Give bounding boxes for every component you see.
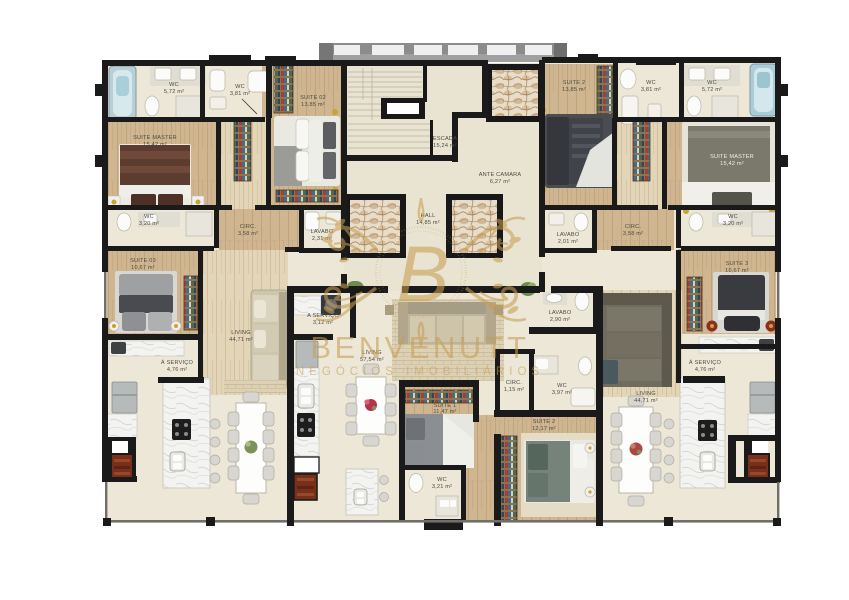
svg-text:3,81 m²: 3,81 m² — [641, 87, 661, 93]
svg-text:3,58 m²: 3,58 m² — [238, 231, 258, 237]
svg-text:WC: WC — [728, 214, 738, 220]
svg-text:15,42 m²: 15,42 m² — [143, 142, 167, 148]
svg-text:3,81 m²: 3,81 m² — [230, 91, 250, 97]
svg-text:WC: WC — [169, 82, 179, 88]
svg-text:Á SERVIÇO: Á SERVIÇO — [161, 359, 194, 366]
svg-text:CIRC.: CIRC. — [506, 380, 522, 386]
svg-text:WC: WC — [144, 214, 154, 220]
svg-text:3,97 m²: 3,97 m² — [552, 390, 572, 396]
svg-text:SUITE 03: SUITE 03 — [130, 258, 156, 264]
svg-text:B: B — [397, 229, 450, 318]
svg-text:6,27 m²: 6,27 m² — [490, 179, 510, 185]
svg-text:CIRC.: CIRC. — [240, 224, 256, 230]
svg-text:CIRC.: CIRC. — [625, 224, 641, 230]
svg-text:5,72 m²: 5,72 m² — [702, 87, 722, 93]
svg-text:WC: WC — [235, 84, 245, 90]
svg-text:BENVENUTT: BENVENUTT — [310, 330, 529, 365]
svg-text:NEGÓCIOS IMOBILIÁRIOS: NEGÓCIOS IMOBILIÁRIOS — [296, 365, 544, 378]
svg-text:3,20 m²: 3,20 m² — [139, 221, 159, 227]
svg-text:13,85 m²: 13,85 m² — [562, 87, 586, 93]
svg-text:44,71 m²: 44,71 m² — [634, 398, 658, 404]
svg-text:10,67 m²: 10,67 m² — [131, 265, 155, 271]
svg-text:SUITE 02: SUITE 02 — [300, 95, 326, 101]
svg-text:15,24 m²: 15,24 m² — [433, 143, 457, 149]
svg-text:3,21 m²: 3,21 m² — [432, 484, 452, 490]
svg-text:SUITE MASTER: SUITE MASTER — [710, 154, 754, 160]
svg-text:10,67 m²: 10,67 m² — [725, 268, 749, 274]
svg-text:ANTE CAMARA: ANTE CAMARA — [479, 172, 522, 178]
svg-text:LAVABO: LAVABO — [549, 310, 572, 316]
svg-text:3,20 m²: 3,20 m² — [723, 221, 743, 227]
svg-text:2,90 m²: 2,90 m² — [550, 317, 570, 323]
svg-text:SUITE 2: SUITE 2 — [533, 419, 556, 425]
svg-text:LAVABO: LAVABO — [557, 232, 580, 238]
svg-text:1,15 m²: 1,15 m² — [504, 387, 524, 393]
svg-text:4,76 m²: 4,76 m² — [695, 367, 715, 373]
svg-text:WC: WC — [707, 80, 717, 86]
svg-text:Á SERVIÇO: Á SERVIÇO — [689, 359, 722, 366]
svg-text:SUITE 2: SUITE 2 — [563, 80, 586, 86]
svg-text:LIVING: LIVING — [231, 330, 251, 336]
svg-text:5,72 m²: 5,72 m² — [164, 89, 184, 95]
svg-text:4,76 m²: 4,76 m² — [167, 367, 187, 373]
svg-text:LIVING: LIVING — [636, 391, 656, 397]
svg-text:2,01 m²: 2,01 m² — [558, 239, 578, 245]
svg-text:12,17 m²: 12,17 m² — [532, 426, 556, 432]
svg-text:WC: WC — [437, 477, 447, 483]
svg-text:13,85 m²: 13,85 m² — [301, 102, 325, 108]
svg-text:WC: WC — [557, 383, 567, 389]
svg-text:3,58 m²: 3,58 m² — [623, 231, 643, 237]
svg-text:44,71 m²: 44,71 m² — [229, 337, 253, 343]
svg-text:11,47 m²: 11,47 m² — [433, 409, 456, 415]
svg-text:15,42 m²: 15,42 m² — [720, 161, 744, 167]
svg-text:SUITE MASTER: SUITE MASTER — [133, 135, 177, 141]
svg-text:WC: WC — [646, 80, 656, 86]
svg-text:ESCADA: ESCADA — [433, 136, 457, 142]
svg-text:SUITE 3: SUITE 3 — [726, 261, 749, 267]
